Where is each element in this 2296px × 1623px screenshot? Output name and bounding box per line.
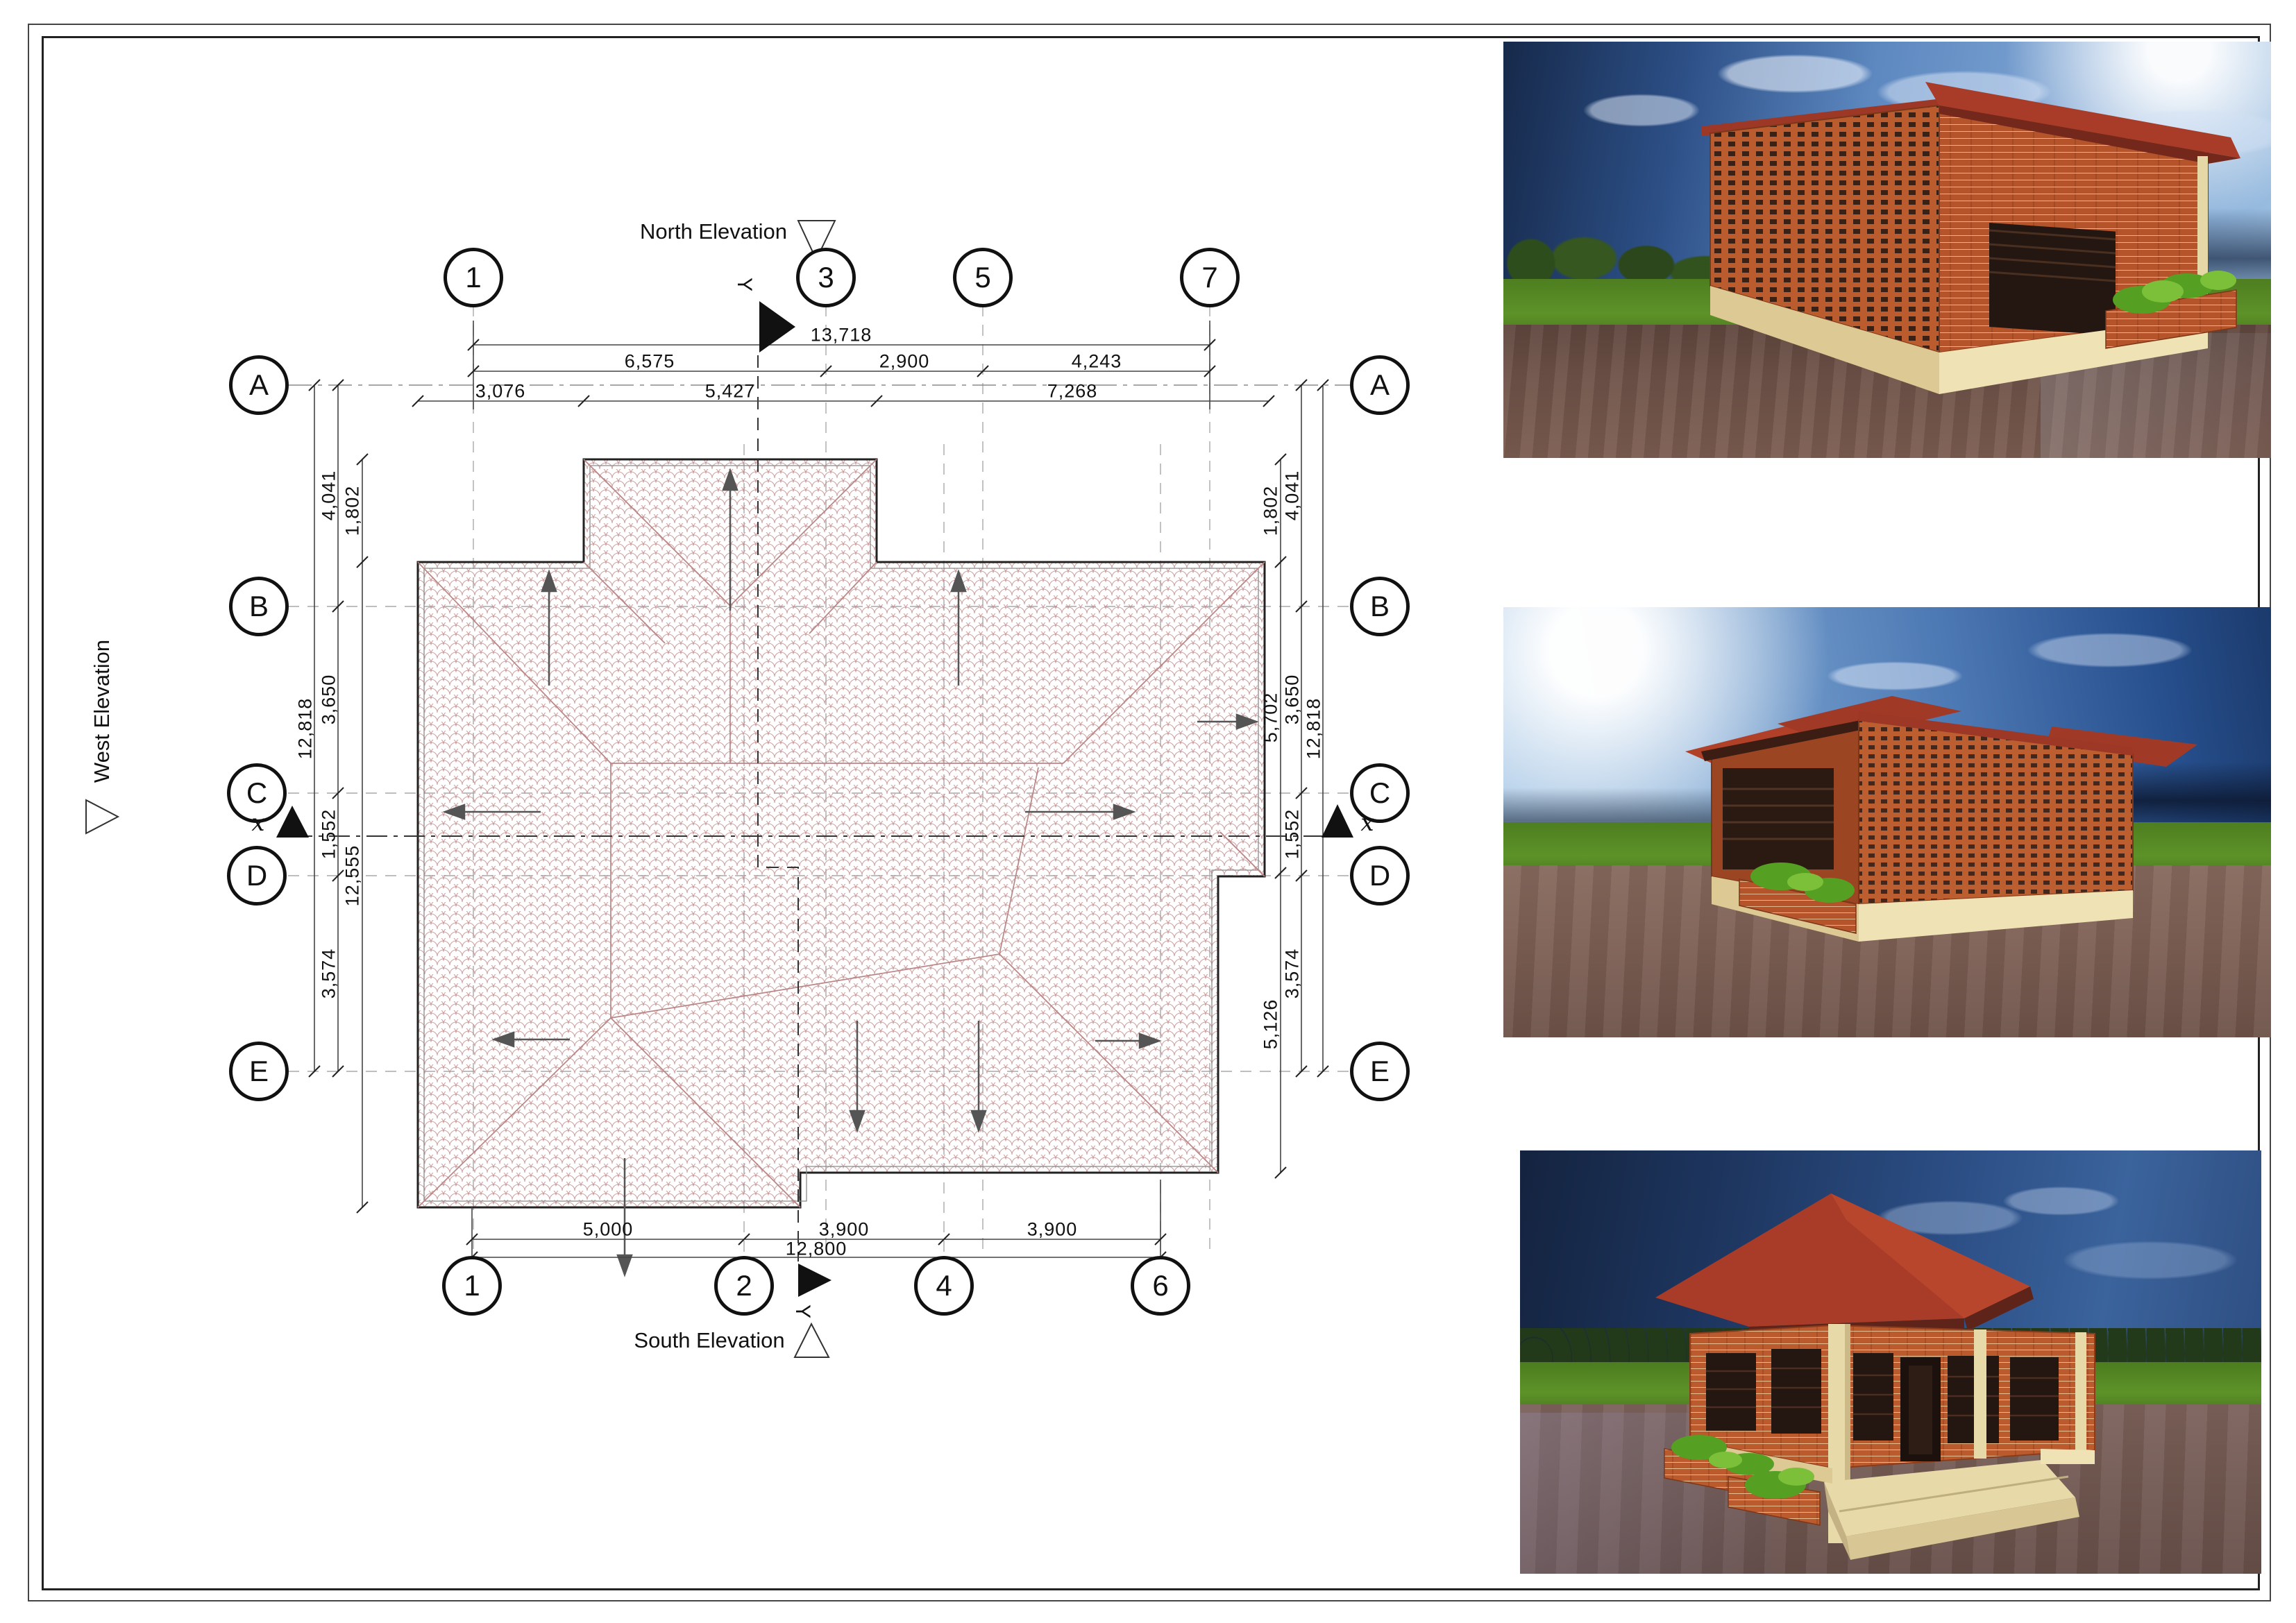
dim-top-edge3: 7,268: [1047, 381, 1098, 402]
south-elevation-label: South Elevation: [634, 1328, 784, 1353]
render-exterior-2: [1503, 607, 2271, 1037]
dim-top-edge2: 5,427: [705, 381, 756, 402]
dim-bottom-seg3: 3,900: [1027, 1219, 1078, 1241]
dim-right-overall: 12,818: [1303, 698, 1325, 760]
dim-right-inner3: 5,126: [1260, 999, 1282, 1050]
house-render-3: [1520, 1150, 2261, 1574]
house-render-1: [1503, 42, 2271, 458]
house-render-2: [1503, 607, 2271, 1037]
grid-bubble-left-D: D: [227, 846, 287, 906]
section-x-label-right: x: [1360, 809, 1374, 837]
roof-outline: [418, 459, 1265, 1207]
grid-bubble-right-E: E: [1350, 1042, 1410, 1101]
south-elevation-triangle-icon: [795, 1324, 829, 1357]
grid-bubble-bottom-2: 2: [714, 1256, 774, 1316]
dim-bottom-seg2: 3,900: [819, 1219, 870, 1241]
grid-bubble-left-E: E: [229, 1042, 289, 1101]
grid-bubble-right-D: D: [1350, 846, 1410, 906]
grid-bubble-right-B: B: [1350, 577, 1410, 636]
grid-bubble-bottom-6: 6: [1131, 1256, 1190, 1316]
dim-left-mid4: 3,574: [319, 949, 340, 999]
dim-right-mid3: 1,552: [1282, 809, 1303, 860]
dim-top-seg2: 2,900: [879, 351, 930, 373]
section-y-label-top: Y: [732, 278, 756, 291]
dim-left-inner1: 1,802: [342, 486, 364, 536]
dim-left-overall: 12,818: [295, 698, 316, 760]
grid-bubble-top-1: 1: [444, 248, 503, 307]
grid-bubble-left-B: B: [229, 577, 289, 636]
dim-left-inner2: 12,555: [342, 845, 364, 907]
north-elevation-label: North Elevation: [640, 219, 787, 244]
west-elevation-triangle-icon: [86, 800, 118, 833]
dim-top-edge1: 3,076: [475, 381, 526, 402]
grid-bubble-top-3: 3: [796, 248, 856, 307]
grid-bubble-top-5: 5: [953, 248, 1013, 307]
dim-right-mid4: 3,574: [1282, 949, 1303, 999]
section-x-arrow-right-icon: [1322, 804, 1353, 838]
dim-right-mid2: 3,650: [1282, 674, 1303, 725]
section-y-label-bottom: Y: [791, 1305, 814, 1318]
render-exterior-3: [1520, 1150, 2261, 1574]
grid-bubble-top-7: 7: [1180, 248, 1240, 307]
west-elevation-label: West Elevation: [90, 640, 115, 783]
grid-bubble-right-C: C: [1350, 763, 1410, 823]
dim-left-mid1: 4,041: [319, 470, 340, 521]
section-x-label-left: x: [251, 809, 264, 837]
dim-bottom-overall: 12,800: [786, 1239, 847, 1260]
dim-right-inner2: 5,702: [1260, 692, 1282, 743]
dim-right-mid1: 4,041: [1282, 470, 1303, 521]
grid-bubble-bottom-1: 1: [442, 1256, 502, 1316]
dim-bottom-seg1: 5,000: [583, 1219, 634, 1241]
dim-top-seg3: 4,243: [1072, 351, 1122, 373]
dim-left-mid3: 1,552: [319, 809, 340, 860]
dim-top-seg1: 6,575: [625, 351, 675, 373]
section-y-arrow-bottom-icon: [798, 1264, 832, 1297]
render-exterior-1: [1503, 42, 2271, 458]
grid-bubble-right-A: A: [1350, 355, 1410, 415]
grid-bubble-left-A: A: [229, 355, 289, 415]
dim-left-mid2: 3,650: [319, 674, 340, 725]
dim-top-overall: 13,718: [811, 325, 872, 346]
drawing-sheet: 1 3 5 7 1 2 4 6 A B C D E A B C D E Nort…: [0, 0, 2296, 1623]
dim-right-inner1: 1,802: [1260, 486, 1282, 536]
grid-bubble-bottom-4: 4: [914, 1256, 974, 1316]
